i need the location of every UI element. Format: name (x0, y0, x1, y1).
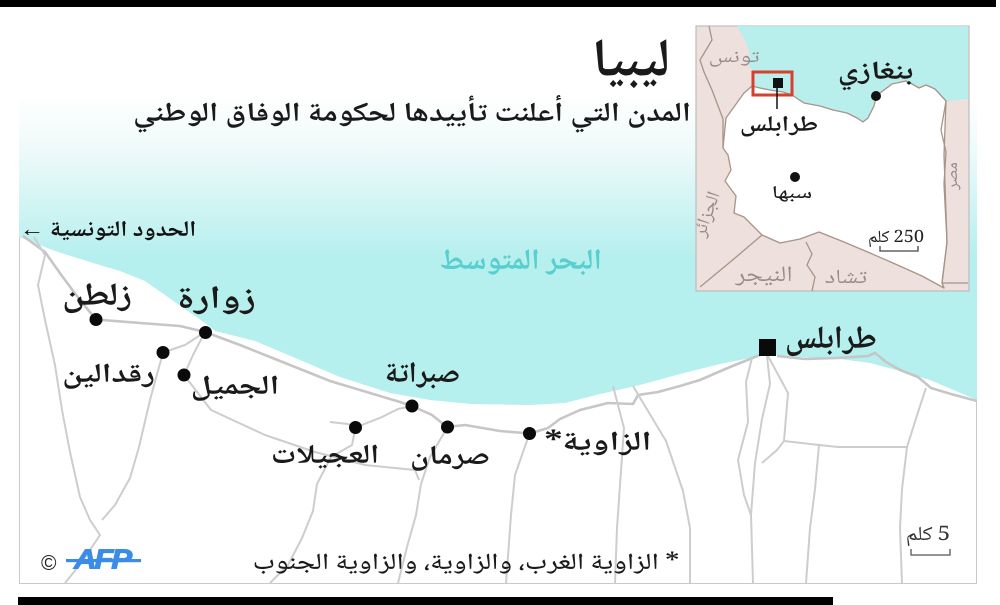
svg-text:طرابلس: طرابلس (740, 108, 819, 146)
svg-text:طرابلس: طرابلس (785, 315, 877, 370)
svg-text:صبراتة: صبراتة (385, 352, 460, 401)
svg-text:تشاد: تشاد (825, 263, 868, 296)
svg-text:رقدالين: رقدالين (62, 354, 155, 400)
svg-text:مصر: مصر (939, 162, 968, 191)
svg-text:250 كلم: 250 كلم (868, 225, 924, 254)
svg-text:سبها: سبها (772, 179, 813, 209)
svg-text:العجيلات: العجيلات (271, 434, 379, 481)
svg-text:الجميل: الجميل (191, 365, 280, 411)
svg-text:* الزاوية الغرب، والزاوية، وال: * الزاوية الغرب، والزاوية، والزاوية الجن… (253, 545, 680, 584)
svg-text:5 كلم: 5 كلم (906, 518, 950, 553)
svg-text:صرمان: صرمان (410, 435, 490, 481)
svg-text:©: © (41, 552, 57, 575)
svg-text:المدن التي أعلنت تأييدها لحكوم: المدن التي أعلنت تأييدها لحكومة الوفاق ا… (133, 92, 691, 139)
svg-text:تونس: تونس (708, 43, 759, 74)
svg-text:النيجر: النيجر (734, 258, 792, 295)
svg-text:الزاوية*: الزاوية* (544, 422, 651, 468)
svg-text:زلطن: زلطن (62, 271, 132, 326)
svg-text:البحر المتوسط: البحر المتوسط (440, 238, 602, 288)
svg-text:زوارة: زوارة (177, 274, 255, 329)
svg-text:بنغازي: بنغازي (838, 51, 914, 96)
svg-text:الحدود التونسية ←: الحدود التونسية ← (20, 212, 196, 250)
